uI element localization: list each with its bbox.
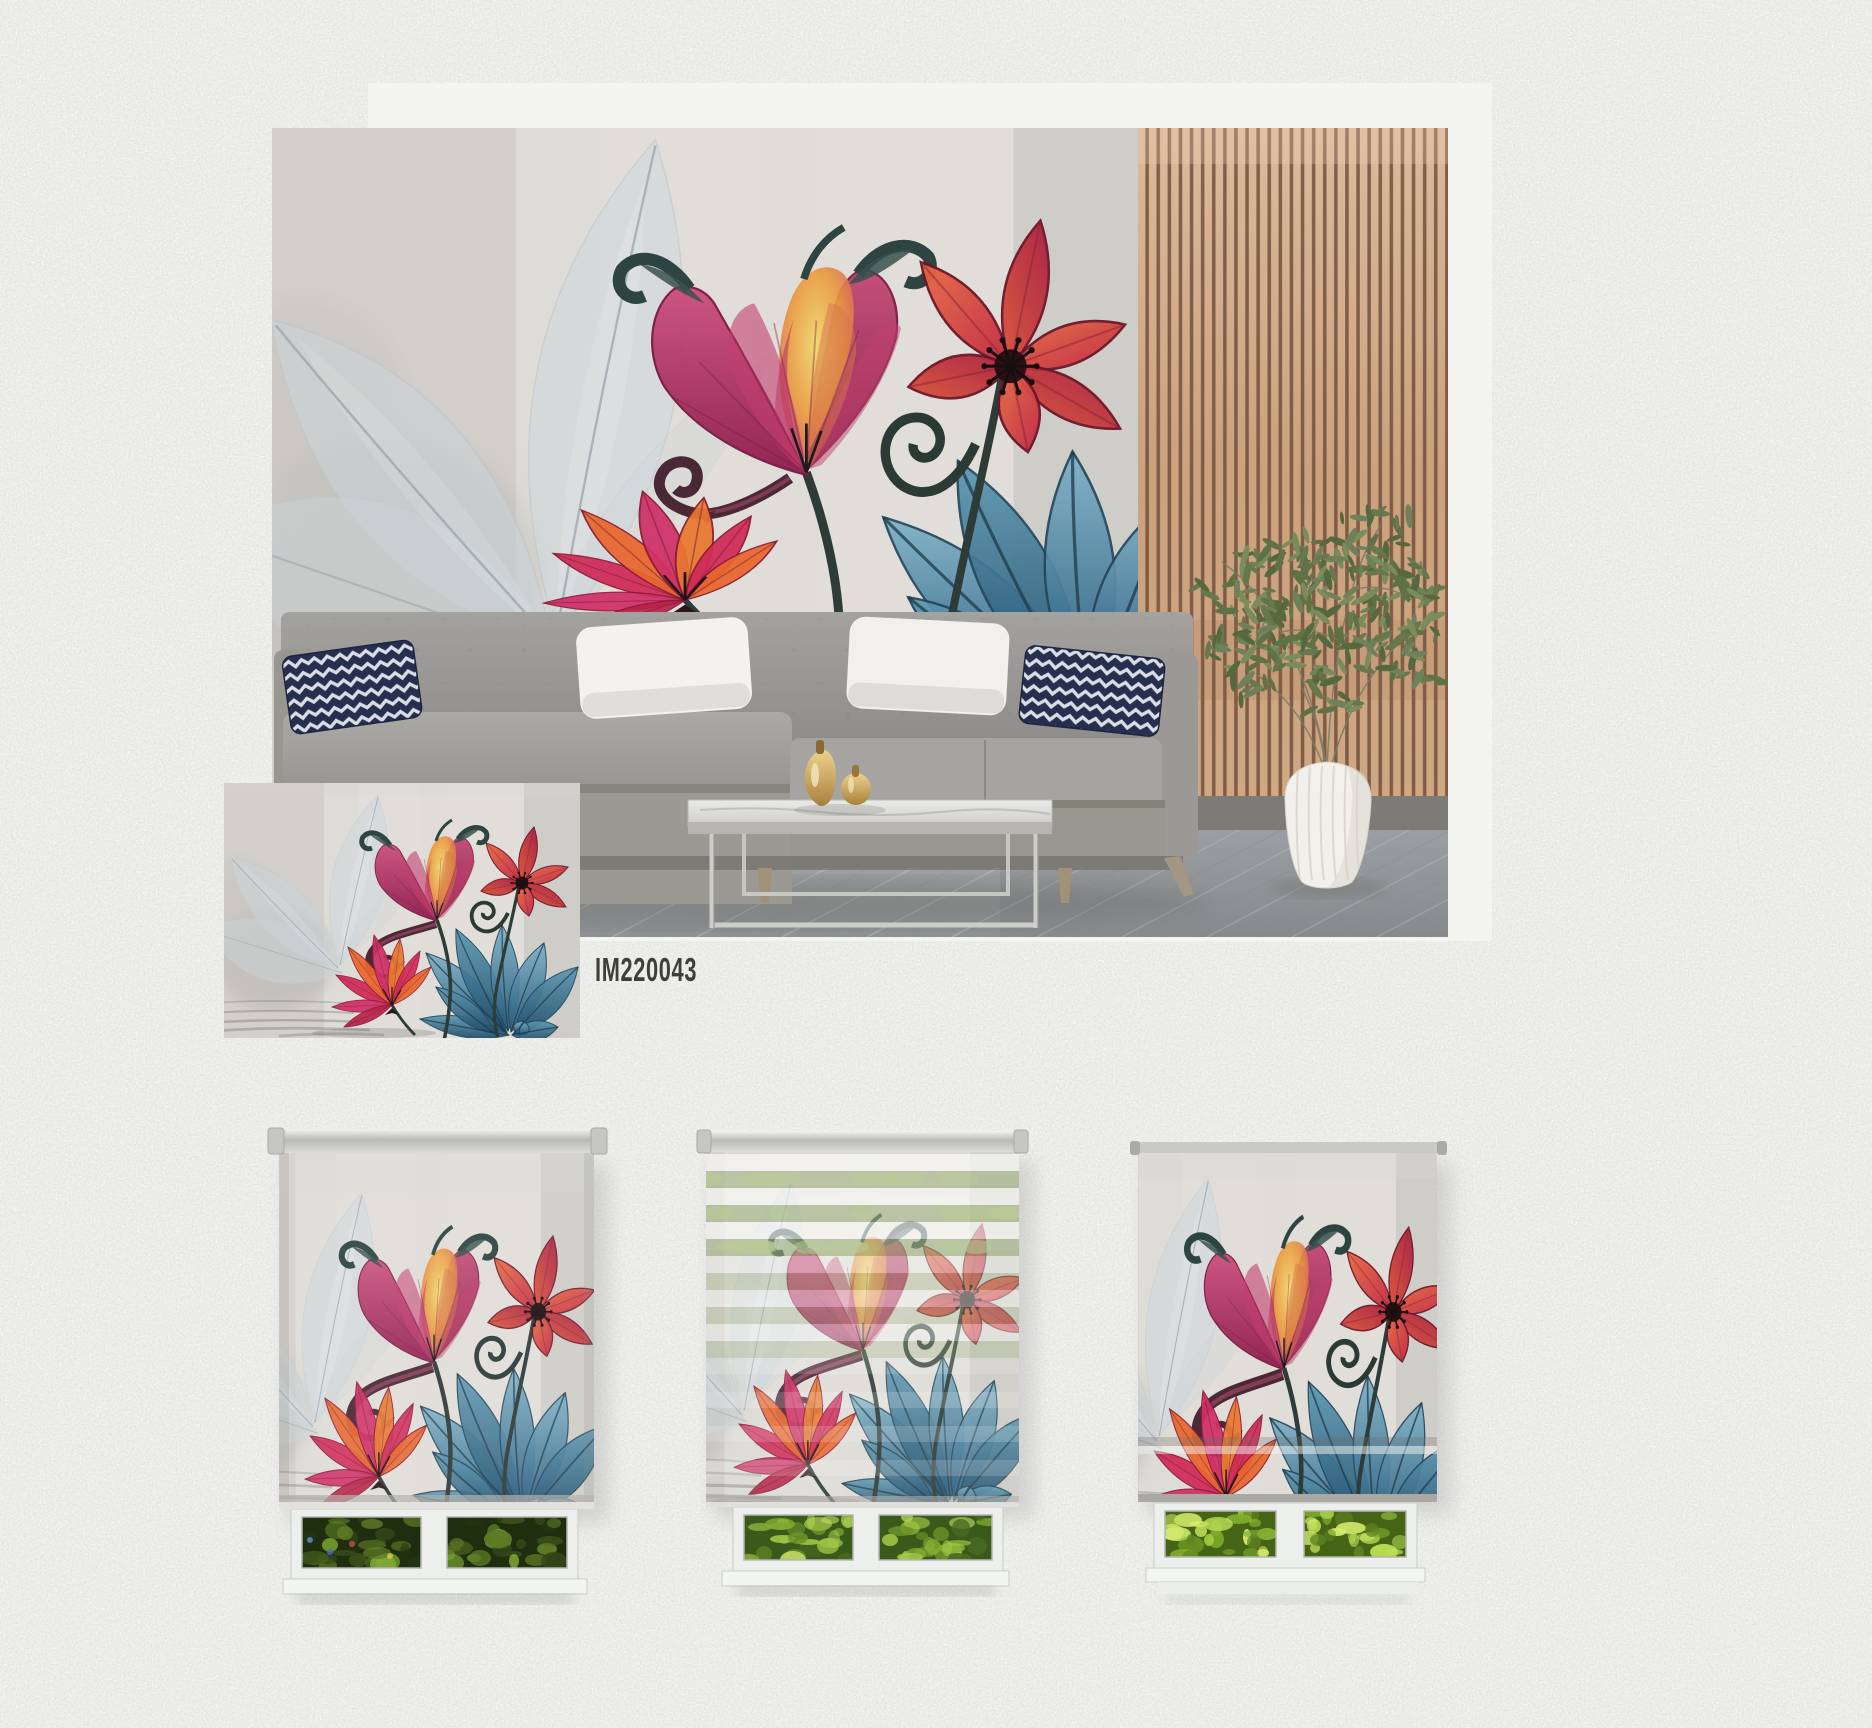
svg-text:IM220043: IM220043 [595, 951, 697, 988]
